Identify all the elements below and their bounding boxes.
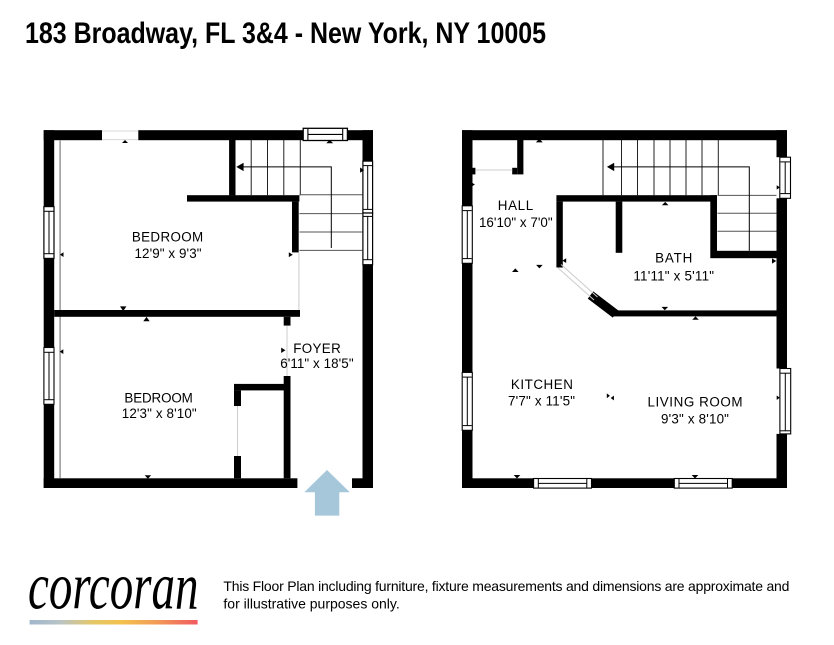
svg-text:6'11" x 18'5": 6'11" x 18'5" — [280, 356, 354, 371]
svg-text:KITCHEN: KITCHEN — [511, 377, 573, 392]
svg-text:HALL: HALL — [498, 198, 533, 213]
svg-text:11'11" x 5'11": 11'11" x 5'11" — [633, 269, 714, 284]
svg-text:7'7" x 11'5": 7'7" x 11'5" — [508, 394, 575, 409]
svg-text:FOYER: FOYER — [293, 341, 341, 356]
svg-text:183 Broadway, FL 3&4 - New Yor: 183 Broadway, FL 3&4 - New York, NY 1000… — [25, 17, 546, 50]
svg-text:This Floor Plan including furn: This Floor Plan including furniture, fix… — [223, 578, 789, 594]
svg-text:BEDROOM: BEDROOM — [124, 390, 192, 405]
svg-text:BATH: BATH — [655, 251, 692, 266]
svg-text:9'3" x 8'10": 9'3" x 8'10" — [661, 411, 729, 426]
svg-text:corcoran: corcoran — [28, 550, 199, 624]
svg-text:12'9" x 9'3": 12'9" x 9'3" — [135, 246, 202, 261]
svg-text:16'10" x 7'0": 16'10" x 7'0" — [479, 215, 553, 230]
svg-text:BEDROOM: BEDROOM — [132, 230, 203, 245]
svg-text:12'3" x 8'10": 12'3" x 8'10" — [122, 406, 197, 421]
svg-text:LIVING ROOM: LIVING ROOM — [647, 395, 742, 410]
svg-text:for illustrative purposes only: for illustrative purposes only. — [223, 596, 399, 612]
